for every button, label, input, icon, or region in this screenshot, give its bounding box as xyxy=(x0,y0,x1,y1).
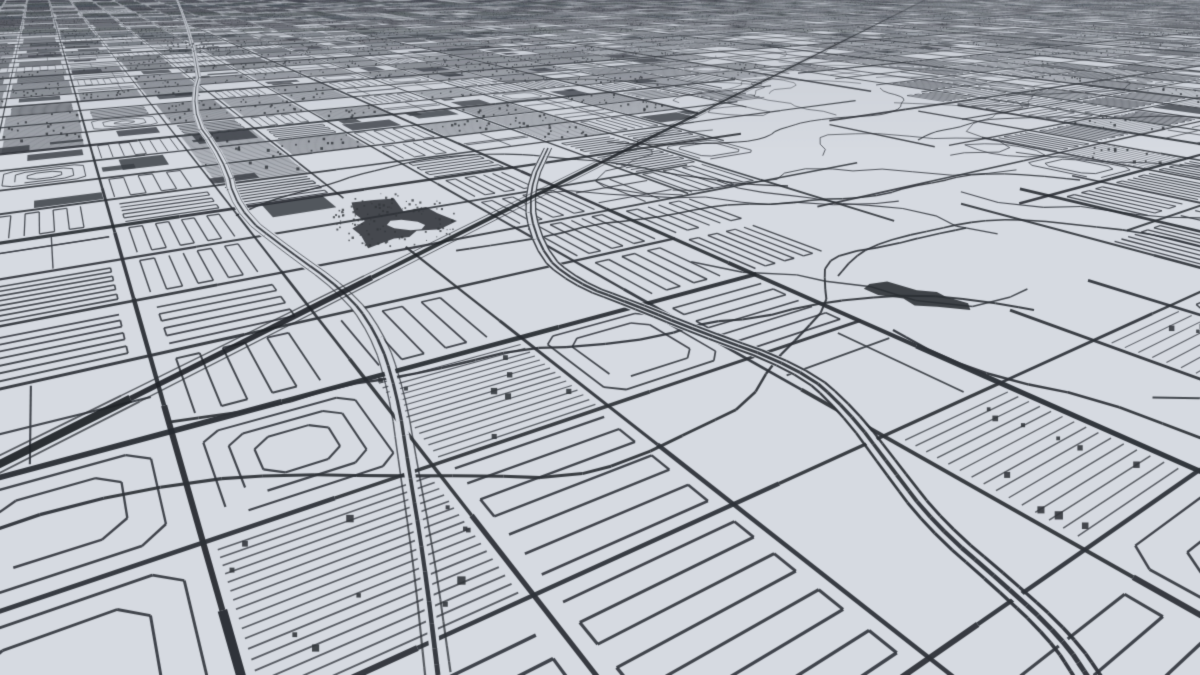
map-viewport xyxy=(0,0,1200,675)
city-map-canvas xyxy=(0,0,1200,675)
